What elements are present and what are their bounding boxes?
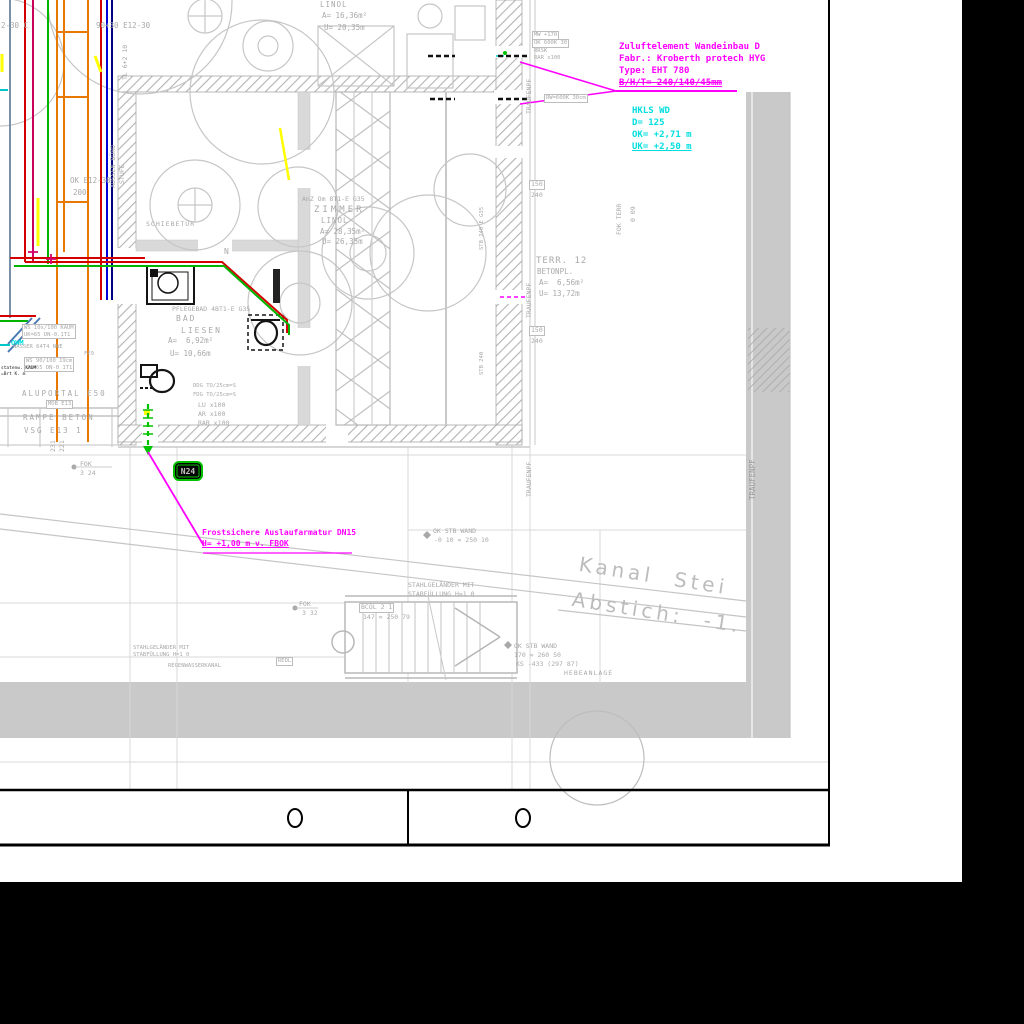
riser-code-right: 90+30 E12-30 bbox=[96, 22, 150, 30]
room-zimmer-code: AnZ Om 8T1-E G35 bbox=[302, 196, 365, 203]
vsg-label: VSG E13 1 bbox=[24, 427, 83, 435]
cad-floorplan-canvas: Zuluftelement Wandeinbau D Fabr.: Krober… bbox=[0, 0, 1024, 1024]
riser-code-left: 2-30 C bbox=[1, 22, 28, 30]
ok-e12-label: OK E12-30 bbox=[70, 177, 111, 185]
okstb-lower-value2: KS -433 (297 87) bbox=[516, 661, 579, 668]
room-bad-name2: LIESEN bbox=[181, 327, 222, 336]
hkls-note-line3: OK= +2,71 m bbox=[632, 130, 692, 140]
railing2-label-line2: STABFÜLLUNG H=1 0 bbox=[133, 652, 189, 658]
redl-tag: REDL bbox=[276, 657, 293, 666]
frost-note-line2: H= +1,00 m v. FBOK bbox=[202, 540, 289, 549]
mob-tag: MOB E13 bbox=[46, 400, 73, 409]
aussen-buero-label: AUSSEN BÜRO bbox=[110, 145, 117, 188]
plan-linework bbox=[0, 0, 1024, 1024]
railing-label-line2: STABFÜLLUNG H=1 0 bbox=[408, 591, 475, 598]
terr12-perimeter: U= 13,72m bbox=[539, 290, 580, 298]
right-black-band bbox=[962, 0, 1024, 1024]
terr12-area: A= 6,56m² bbox=[539, 279, 584, 287]
fok-stair-label: FOK bbox=[299, 601, 311, 608]
rw600-tag: RW=600K 30cm bbox=[544, 94, 588, 103]
dim-240-top: 240 bbox=[531, 192, 543, 199]
hkls-note-line4: UK= +2,50 m bbox=[632, 142, 692, 152]
hkls-note-line2: D= 125 bbox=[632, 118, 665, 128]
okstb-upper-value: -0 10 = 250 10 bbox=[434, 537, 489, 544]
ws1-tag: WS 10x/100 KAUMUK=65 DN-0.1T1 bbox=[22, 324, 76, 339]
stb-label-1: STB 240 E G35 bbox=[479, 207, 485, 250]
punch-hole-left bbox=[288, 809, 302, 827]
terr12-name: TERR. 12 bbox=[536, 256, 587, 266]
stb-label-2: STB 240 bbox=[479, 352, 485, 375]
traufe-label-band: TRAUFENPF bbox=[749, 459, 757, 500]
ws1-line1: WS 10x/100 KAUM bbox=[24, 325, 74, 331]
ar-label: AR x100 bbox=[198, 411, 225, 418]
railing2-label-line1: STAHLGELÄNDER MIT bbox=[133, 645, 189, 651]
hebeanlage-label: HEBEANLAGE bbox=[564, 670, 613, 677]
room-linol-area: A= 16,36m² bbox=[322, 12, 367, 20]
fok-terr-label: FOK TERR bbox=[616, 204, 623, 235]
fok-left-value: 3 24 bbox=[80, 470, 96, 477]
room-zimmer-area: A= 28,35m² bbox=[320, 228, 365, 236]
sliding-door-label: SCHIEBETÜR bbox=[146, 221, 195, 228]
zuluft-note-line1: Zuluftelement Wandeinbau D bbox=[619, 42, 760, 52]
room-zimmer-name: ZIMMER bbox=[314, 205, 365, 215]
lu-label: LU x100 bbox=[198, 402, 225, 409]
room-bad-name: BAD bbox=[176, 315, 196, 324]
black-note-line1: statenw. KAUM bbox=[1, 366, 36, 371]
fok-terr-value: 0 09 bbox=[630, 206, 637, 222]
railing-label-line1: STAHLGELÄNDER MIT bbox=[408, 582, 475, 589]
north-label: N bbox=[224, 248, 229, 257]
terr12-material: BETONPL. bbox=[537, 268, 573, 276]
ddg-label: DDG TO/25cm=S bbox=[193, 383, 236, 389]
wasser-label: WASSER 64T4 NWE bbox=[13, 344, 63, 350]
regenwasser-label: REGENWASSERKANAL bbox=[168, 663, 221, 669]
dim-150-bottom: 150 bbox=[529, 326, 545, 336]
fe9-label: FE9 bbox=[84, 351, 94, 357]
rampe-label: RAMPE BETON bbox=[23, 414, 95, 422]
rar-x100-label: RAR x100 bbox=[534, 55, 561, 61]
tl-riser-label: TL 6+2 10 bbox=[122, 45, 129, 80]
dim-240-bottom: 240 bbox=[531, 338, 543, 345]
traufe-label-1: TRAUFENPF bbox=[526, 79, 533, 114]
rrsk-label: RRSK bbox=[534, 48, 547, 54]
dim-221-label: 221 bbox=[59, 440, 66, 452]
room-bad-area: A= 6,92m² bbox=[168, 337, 213, 345]
fdg-label: FDG TO/25cm=S bbox=[193, 392, 236, 398]
room-linol-name: LINOL bbox=[320, 1, 348, 9]
fok-stair-value: 3 32 bbox=[302, 610, 318, 617]
n24-badge: N24 bbox=[173, 461, 203, 481]
room-bad-perimeter: U= 10,66m bbox=[170, 350, 211, 358]
punch-hole-right bbox=[516, 809, 530, 827]
frost-note-line1: Frostsichere Auslaufarmatur DN15 bbox=[202, 529, 356, 538]
rar-label: RAR x100 bbox=[198, 420, 229, 427]
room-linol-perimeter: U= 20,35m bbox=[324, 24, 365, 32]
zuluft-note-line3: Type: EHT 780 bbox=[619, 66, 689, 76]
stair-dim-label: 147 = 250 79 bbox=[363, 614, 410, 621]
room-bad-code: PFLEGEBAD 4BT1-E G35 bbox=[172, 306, 250, 313]
black-note-line2: =Brt K. m bbox=[1, 372, 25, 377]
okstb-lower-value1: 170 = 260 50 bbox=[514, 652, 561, 659]
ws1-line2: UK=65 DN-0.1T1 bbox=[24, 332, 70, 338]
aluportal-label: ALUPORTAL E50 bbox=[22, 390, 107, 398]
okstb-lower-label: OK STB WAND bbox=[514, 643, 557, 650]
dim-200-label: 200 bbox=[73, 189, 87, 197]
room-zimmer-floor: LINOL bbox=[321, 217, 349, 225]
okstb-upper-label: OK STB WAND bbox=[433, 528, 476, 535]
zuluft-note-line4: B/H/T= 240/140/45mm bbox=[619, 78, 722, 88]
dim-150-top: 150 bbox=[529, 180, 545, 190]
ok600-tag: OK 600K 30 bbox=[532, 39, 569, 48]
bcol-tag: BCOL 2 1 bbox=[359, 603, 394, 613]
zuluft-note-line2: Fabr.: Kroberth protech HYG bbox=[619, 54, 765, 64]
n24-badge-label: N24 bbox=[181, 467, 195, 476]
ws2-line1: WS 90/100 19cm bbox=[26, 358, 72, 364]
traufe-label-2: TRAUFENPF bbox=[526, 283, 533, 318]
hkls-note-line1: HKLS WD bbox=[632, 106, 670, 116]
stufe-label: STUFE bbox=[119, 164, 126, 184]
fok-left-label: FOK bbox=[80, 461, 92, 468]
traufe-label-3: TRAUFENPF bbox=[526, 462, 533, 497]
bottom-black-band bbox=[0, 882, 1024, 1024]
room-zimmer-perimeter: U= 26,35m bbox=[322, 238, 363, 246]
dim-231-label: 231 bbox=[50, 440, 57, 452]
